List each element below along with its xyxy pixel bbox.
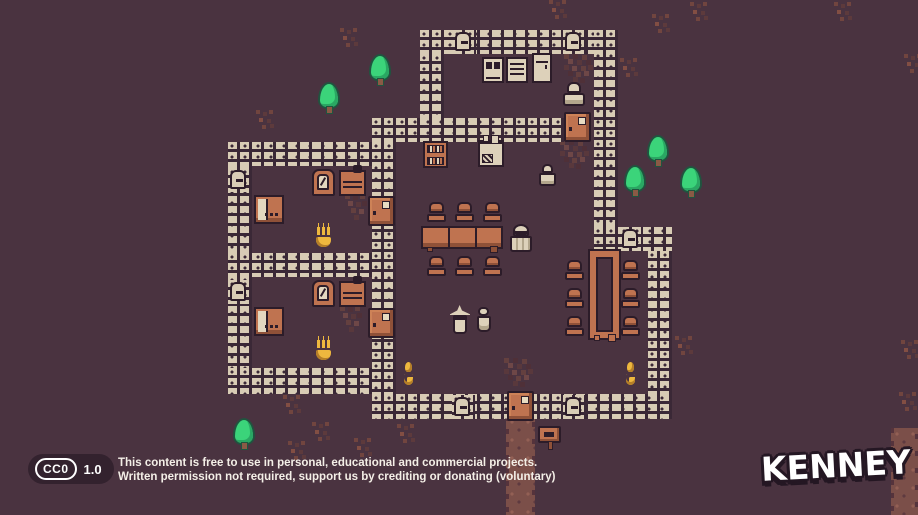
- tile-chair: [621, 316, 641, 338]
- tile-tableh: [421, 226, 503, 249]
- tile-wall: [420, 54, 444, 118]
- tile-chair: [455, 202, 475, 224]
- tile-tablev: [590, 251, 619, 338]
- tile-witch: [450, 305, 471, 336]
- tile-decor: [901, 340, 918, 359]
- tile-decor: [312, 422, 330, 441]
- tile-tree: [371, 56, 389, 85]
- license-line-2: Written permission not required, support…: [118, 470, 555, 484]
- tile-rug: [340, 306, 364, 334]
- tile-monk: [562, 82, 587, 109]
- tile-window: [228, 168, 251, 192]
- tile-dirt: [560, 140, 590, 172]
- tile-chair: [427, 256, 447, 278]
- tile-door: [368, 308, 395, 338]
- tile-cabt: [532, 53, 552, 83]
- tile-torch: [402, 362, 416, 390]
- tile-chair: [565, 260, 585, 282]
- tile-rug: [345, 194, 369, 222]
- license-text: This content is free to use in personal,…: [118, 456, 555, 484]
- tile-bed: [254, 307, 284, 336]
- tile-tree: [235, 420, 253, 449]
- tile-tree: [320, 84, 338, 113]
- tile-dirt: [504, 358, 534, 390]
- tile-window: [452, 395, 475, 419]
- tile-window: [453, 30, 476, 54]
- tile-candle: [314, 222, 334, 250]
- tile-decor: [652, 14, 670, 33]
- tile-decor: [904, 54, 918, 73]
- tile-mirror: [312, 280, 335, 307]
- cc0-badge: CC0 1.0: [28, 454, 114, 484]
- tile-wall: [594, 30, 618, 227]
- tile-oldman: [537, 164, 559, 190]
- tile-door: [564, 112, 591, 142]
- tile-decor: [549, 0, 567, 19]
- tile-stove: [478, 140, 504, 167]
- tile-chair: [483, 202, 503, 224]
- tile-wall: [420, 30, 618, 54]
- tile-decor: [397, 424, 415, 443]
- tile-window: [620, 227, 643, 251]
- tile-wall: [228, 142, 372, 166]
- tile-wall: [228, 368, 372, 394]
- tile-tree: [682, 168, 700, 197]
- tile-window: [228, 280, 251, 304]
- tile-cabx: [482, 57, 504, 83]
- tile-torch: [624, 362, 638, 390]
- kenney-logo: KENNEY: [757, 442, 915, 489]
- tile-decor: [899, 392, 917, 411]
- tile-chair: [621, 260, 641, 282]
- tile-wall: [372, 142, 396, 418]
- tile-decor: [690, 2, 708, 21]
- tile-mirror: [312, 169, 335, 196]
- tile-bookshelf: [423, 141, 448, 168]
- tile-cultist: [509, 224, 534, 253]
- tile-bed: [254, 195, 284, 224]
- tile-candle: [314, 335, 334, 363]
- tile-tree: [626, 167, 644, 196]
- tile-wall: [372, 118, 564, 142]
- tile-chair: [565, 288, 585, 310]
- tile-decor: [354, 438, 372, 457]
- tile-decor: [675, 336, 693, 355]
- asset-preview-screenshot: CC0 1.0 This content is free to use in p…: [0, 0, 918, 515]
- tile-decor: [283, 395, 301, 414]
- tile-door: [368, 196, 395, 226]
- tile-tree: [649, 137, 667, 166]
- tile-chair: [621, 288, 641, 310]
- tile-chair: [427, 202, 447, 224]
- tile-sign: [538, 426, 561, 443]
- tile-dresser: [339, 170, 366, 196]
- tile-chair: [565, 316, 585, 338]
- tile-decor: [256, 110, 274, 129]
- tile-dresser: [339, 281, 366, 307]
- tile-wall: [648, 251, 672, 394]
- tile-woman: [475, 307, 493, 334]
- tile-chair: [455, 256, 475, 278]
- tile-wall: [228, 166, 252, 392]
- license-version: 1.0: [84, 462, 102, 477]
- tile-decor: [340, 28, 358, 47]
- tile-decor: [834, 2, 852, 21]
- tile-decor: [620, 58, 638, 77]
- tile-window: [563, 30, 586, 54]
- tile-chair: [483, 256, 503, 278]
- tile-wall: [228, 253, 372, 277]
- cc0-logo: CC0: [35, 458, 77, 480]
- tile-cabd: [506, 57, 528, 83]
- tile-window: [563, 395, 586, 419]
- license-line-1: This content is free to use in personal,…: [118, 456, 555, 470]
- tile-door: [507, 391, 534, 421]
